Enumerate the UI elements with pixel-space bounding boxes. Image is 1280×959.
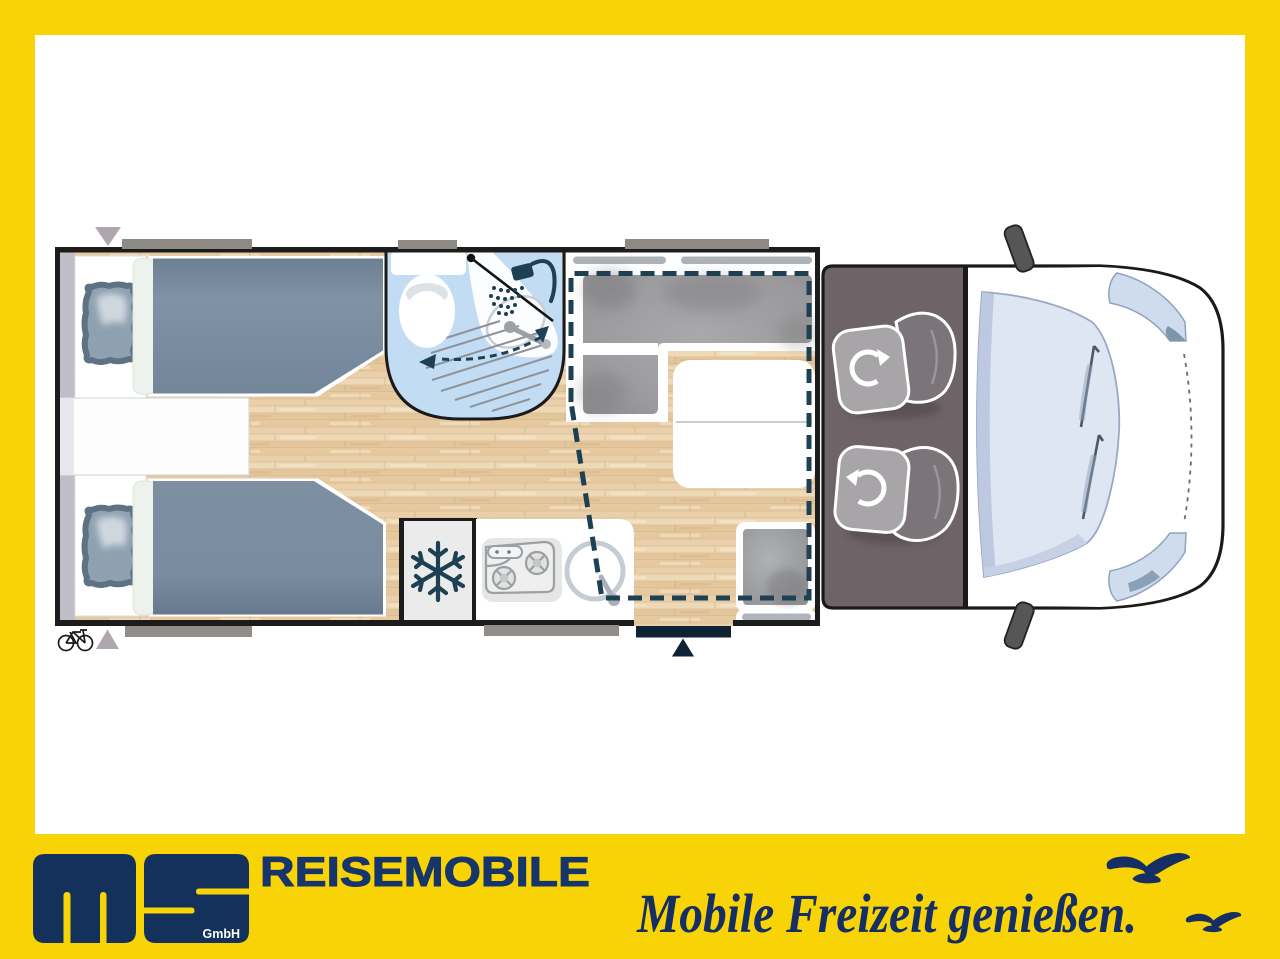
svg-text:Mobile Freizeit genießen.: Mobile Freizeit genießen.	[636, 883, 1137, 944]
svg-text:GmbH: GmbH	[203, 927, 241, 941]
svg-text:REISEMOBILE: REISEMOBILE	[260, 848, 590, 895]
